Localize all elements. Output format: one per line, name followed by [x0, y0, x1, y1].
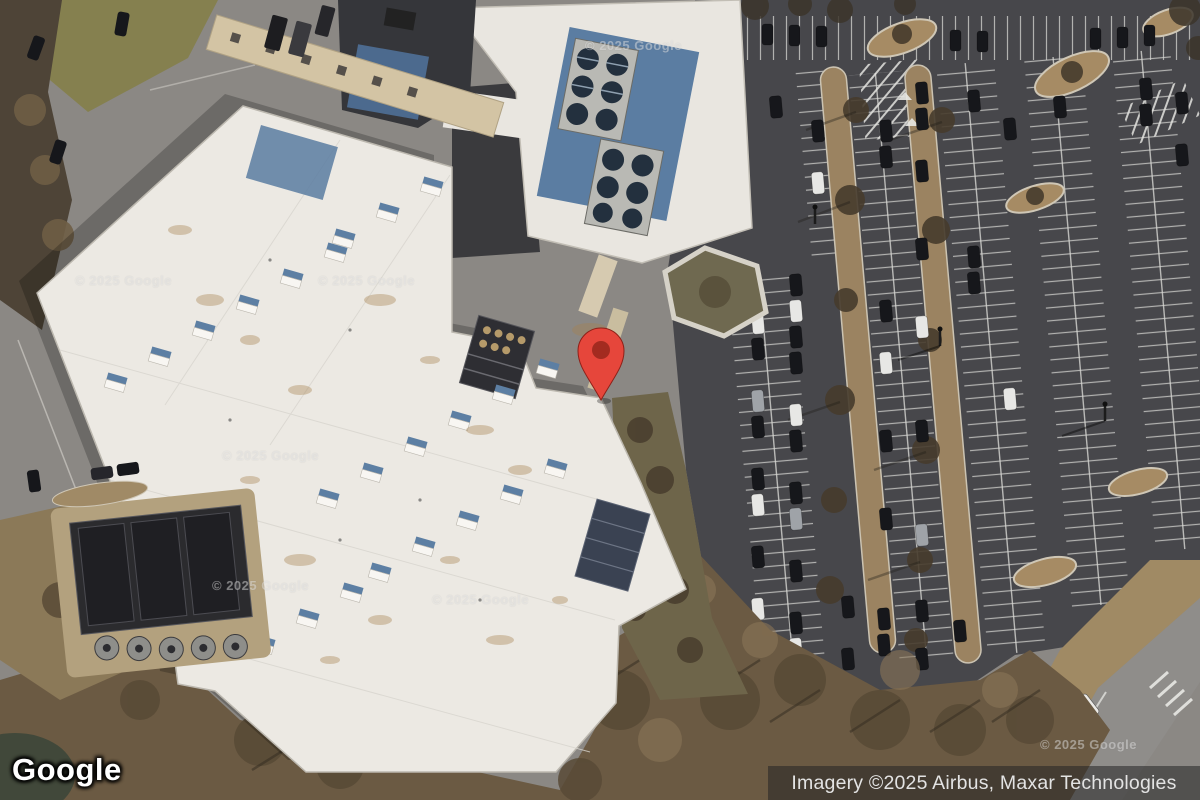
pin-dot — [592, 341, 610, 359]
utility-yard — [50, 488, 272, 678]
satellite-scene — [0, 0, 1200, 800]
attribution-bar: Imagery ©2025 Airbus, Maxar Technologies — [768, 766, 1200, 800]
map-canvas[interactable]: © 2025 Google © 2025 Google © 2025 Googl… — [0, 0, 1200, 800]
google-logo[interactable]: Google — [12, 752, 122, 788]
attribution-text: Imagery ©2025 Airbus, Maxar Technologies — [791, 772, 1176, 795]
